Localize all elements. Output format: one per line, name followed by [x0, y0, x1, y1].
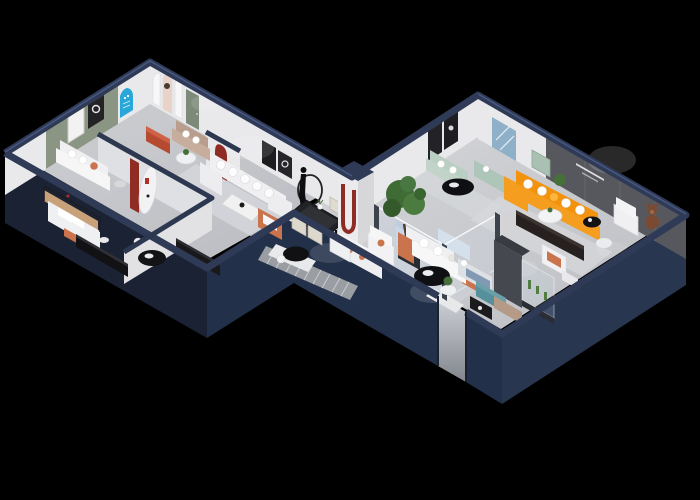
pillow [253, 182, 262, 191]
arch-panel-2 [175, 78, 182, 119]
teddy-ear [654, 203, 658, 207]
showroom-render [0, 0, 700, 500]
table-decor [588, 218, 592, 222]
logo-dot [147, 195, 150, 198]
pillow [434, 247, 443, 256]
table-tray [145, 254, 154, 259]
nightstand [99, 237, 109, 243]
shelf-decor [478, 306, 482, 310]
poster-dot [124, 97, 126, 99]
black-oval-table-entry [283, 247, 309, 262]
logo-mark [145, 178, 149, 184]
table-plant [548, 208, 553, 213]
frame-detail [449, 126, 454, 131]
pillow [68, 150, 76, 158]
isometric-floorplan-svg [0, 0, 700, 500]
tree-foliage [400, 176, 416, 192]
table-plant [183, 149, 189, 155]
pillow [79, 156, 87, 164]
pillow [229, 168, 238, 177]
teddy-bear-body [645, 215, 659, 229]
shelf-decor [67, 195, 70, 198]
plant-side-table [440, 285, 456, 295]
pillow [420, 239, 429, 248]
arch-panel-poster [163, 73, 172, 114]
pillow [241, 175, 250, 184]
black-oval-table-mint [442, 179, 474, 196]
table-plant [444, 277, 453, 286]
table-vase [240, 203, 245, 208]
pillow [450, 167, 457, 174]
mannequin-head [301, 167, 307, 173]
pillow [193, 137, 200, 144]
orange-pillow [550, 193, 558, 201]
cactus [544, 292, 547, 300]
pillow [461, 260, 467, 266]
pillow [217, 161, 226, 170]
black-oval-table [138, 250, 166, 266]
pillow [438, 161, 445, 168]
cactus [528, 280, 531, 289]
pillow [524, 180, 533, 189]
door-knob [196, 113, 198, 115]
red-wall-stripe [130, 158, 139, 213]
side-table [114, 181, 126, 188]
black-side-table [583, 217, 601, 228]
white-side-table [596, 238, 612, 248]
table-vase [318, 205, 323, 210]
sofa-plant [554, 174, 566, 186]
pillow [483, 166, 489, 172]
table-tray [423, 270, 434, 276]
pillow [576, 206, 585, 215]
tree-foliage [383, 199, 401, 217]
arch-panel-1 [153, 73, 160, 107]
teddy-ear [646, 203, 650, 207]
teddy-muzzle [650, 210, 654, 214]
poster-dot [127, 95, 129, 97]
terracotta-pillow [378, 240, 385, 247]
poster-figure [164, 83, 170, 89]
cactus [536, 286, 539, 294]
white-seat [277, 255, 285, 263]
pillow [265, 189, 274, 198]
pillow [183, 131, 190, 138]
pillow [538, 187, 547, 196]
tree-foliage [414, 188, 426, 200]
table-tray [449, 183, 459, 188]
terracotta-pillow [90, 162, 98, 170]
pillow [562, 199, 571, 208]
